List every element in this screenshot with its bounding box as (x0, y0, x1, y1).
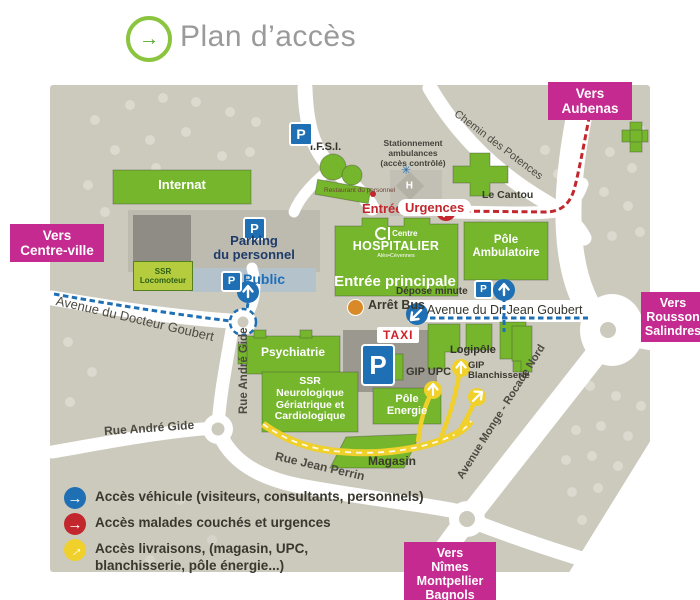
pole-ambulatoire-label: Pôle Ambulatoire (466, 234, 546, 260)
arret-bus-label: Arrêt Bus (368, 299, 425, 312)
direction-aubenas: Vers Aubenas (548, 82, 632, 120)
parking-icon-main: P (361, 344, 395, 386)
parking-personnel-label: Parking du personnel (196, 234, 312, 263)
page-title: Plan d’accès (180, 20, 356, 54)
parking-icon-public: P (221, 271, 242, 292)
legend-red-arrow-icon: → (64, 513, 86, 535)
road-rue-andre-gide-vertical: Rue André Gide (238, 328, 250, 414)
legend-yellow-arrow-icon: → (64, 539, 86, 561)
legend-malades: → Accès malades couchés et urgences (64, 513, 331, 535)
gip-blanchisserie-label: GIP Blanchisserie (468, 361, 530, 381)
gip-upc-label: GIP UPC (406, 367, 451, 379)
psychiatrie-label: Psychiatrie (248, 346, 338, 359)
hospital-logo-sub: Alès•Cévennes (338, 253, 454, 259)
ifsi-label: I.F.S.I. (310, 142, 341, 154)
ssr-locomoteur-label: SSR Locomoteur (140, 267, 186, 285)
h-letter: H (406, 180, 413, 191)
urgences-badge: Urgences (398, 199, 471, 216)
taxi-badge: TAXI (377, 327, 419, 343)
ssr-locomoteur-building: SSR Locomoteur (133, 261, 193, 291)
road-avenue-dr-jean-goubert: Avenue du Dr Jean Goubert (427, 303, 582, 317)
access-map-page: → Plan d’accès Vers Aubenas Vers Centre-… (0, 0, 700, 600)
logipole-label: Logipôle (450, 345, 496, 357)
hospital-logo: Centre HOSPITALIER Alès•Cévennes (338, 227, 454, 259)
legend-livraisons: → Accès livraisons, (magasin, UPC, blanc… (64, 539, 308, 575)
parking-personnel-building (133, 215, 191, 265)
hospital-logo-name: HOSPITALIER (338, 239, 454, 253)
le-cantou-label: Le Cantou (482, 190, 533, 201)
internat-label: Internat (113, 178, 251, 193)
pole-energie-label: Pôle Energie (373, 393, 441, 418)
parking-public-label: Public (243, 272, 285, 287)
ssr-neurologique-label: SSR Neurologique Gériatrique et Cardiolo… (262, 376, 358, 423)
depose-minute-label: Dépose minute (396, 287, 468, 298)
hospital-logo-centre: Centre (392, 229, 417, 238)
legend-livraisons-label: Accès livraisons, (magasin, UPC, blanchi… (95, 539, 308, 575)
parking-icon-depose: P (474, 280, 493, 299)
legend-vehicule: → Accès véhicule (visiteurs, consultants… (64, 487, 424, 509)
magasin-label: Magasin (368, 455, 416, 468)
arrow-icon: → (139, 29, 159, 49)
entree-urgences-label: Entrée (362, 202, 402, 216)
legend-vehicule-label: Accès véhicule (visiteurs, consultants, … (95, 487, 424, 506)
direction-centre-ville: Vers Centre-ville (10, 224, 104, 262)
restaurant-label: Restaurant du personnel (324, 188, 395, 195)
stationnement-ambulances-label: Stationnement ambulances (accès contrôlé… (378, 138, 448, 169)
legend-blue-arrow-icon: → (64, 487, 86, 509)
direction-rousson: Vers Rousson Salindres (641, 292, 700, 342)
access-plan-icon: → (126, 16, 172, 62)
direction-nimes: Vers Nîmes Montpellier Bagnols (404, 542, 496, 600)
legend-malades-label: Accès malades couchés et urgences (95, 513, 331, 532)
parking-icon-north: P (289, 122, 313, 146)
bus-stop-icon (347, 299, 364, 316)
